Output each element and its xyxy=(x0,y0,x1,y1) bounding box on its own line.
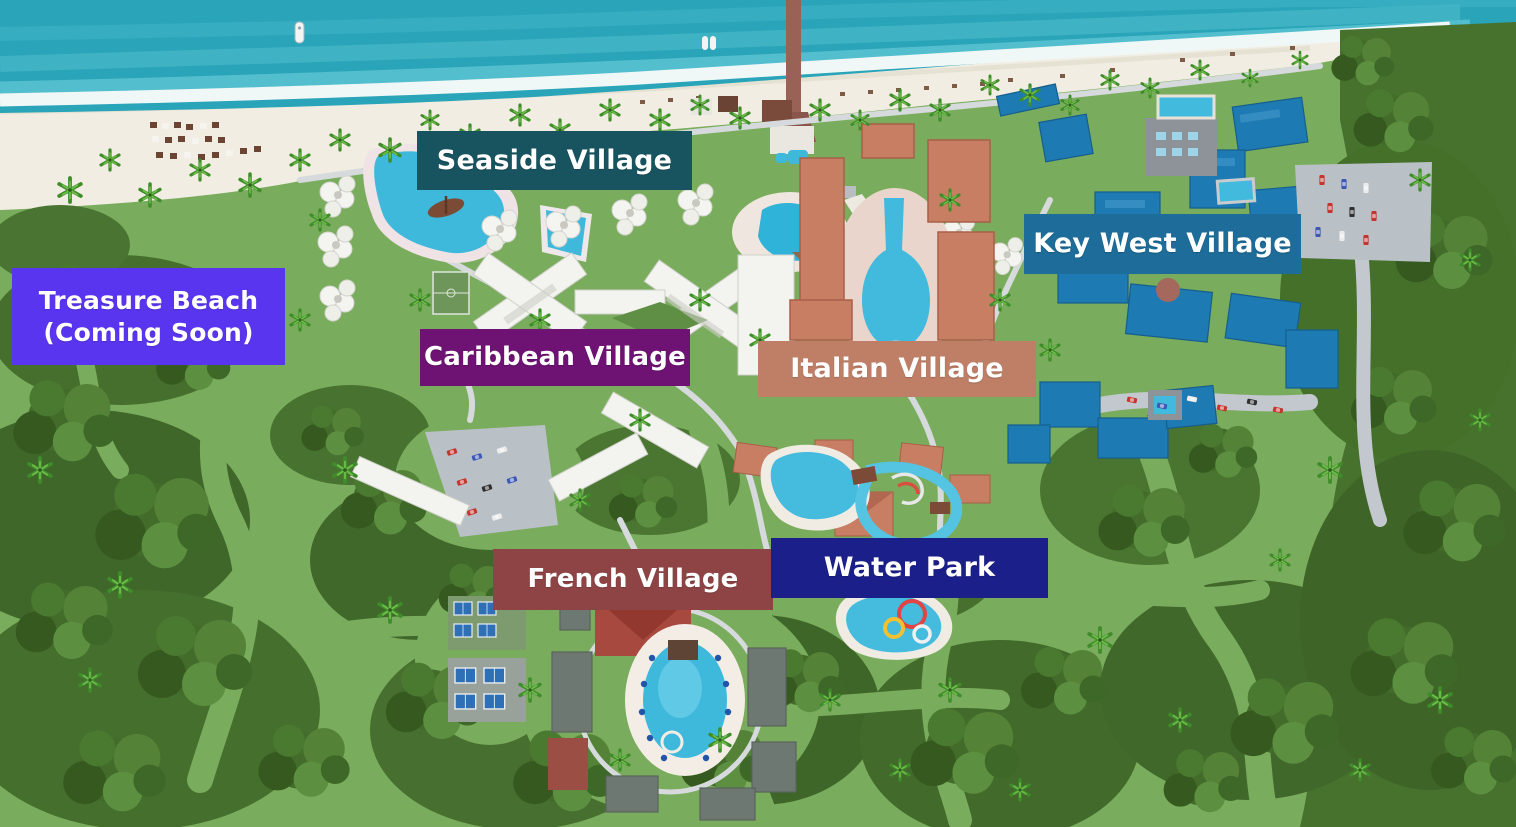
label-water-park-text: Water Park xyxy=(824,551,996,585)
label-seaside-village-text: Seaside Village xyxy=(437,144,672,178)
label-french-village-text: French Village xyxy=(527,563,738,596)
resort-map-page: Seaside Village Key West Village Treasur… xyxy=(0,0,1516,827)
boat-icon xyxy=(295,22,304,43)
label-caribbean-village[interactable]: Caribbean Village xyxy=(420,329,690,386)
label-key-west-village[interactable]: Key West Village xyxy=(1024,214,1301,274)
label-key-west-village-text: Key West Village xyxy=(1033,227,1292,261)
label-italian-village-text: Italian Village xyxy=(790,352,1004,386)
label-french-village[interactable]: French Village xyxy=(493,549,773,610)
label-treasure-beach-text: Treasure Beach (Coming Soon) xyxy=(39,285,258,348)
resort-map-illustration xyxy=(0,0,1516,827)
label-water-park[interactable]: Water Park xyxy=(771,538,1048,598)
tennis-courts xyxy=(448,596,526,722)
label-caribbean-village-text: Caribbean Village xyxy=(424,341,686,374)
label-italian-village[interactable]: Italian Village xyxy=(758,341,1036,397)
label-seaside-village[interactable]: Seaside Village xyxy=(417,131,692,190)
soccer-field xyxy=(433,272,469,314)
label-treasure-beach[interactable]: Treasure Beach (Coming Soon) xyxy=(12,268,285,365)
